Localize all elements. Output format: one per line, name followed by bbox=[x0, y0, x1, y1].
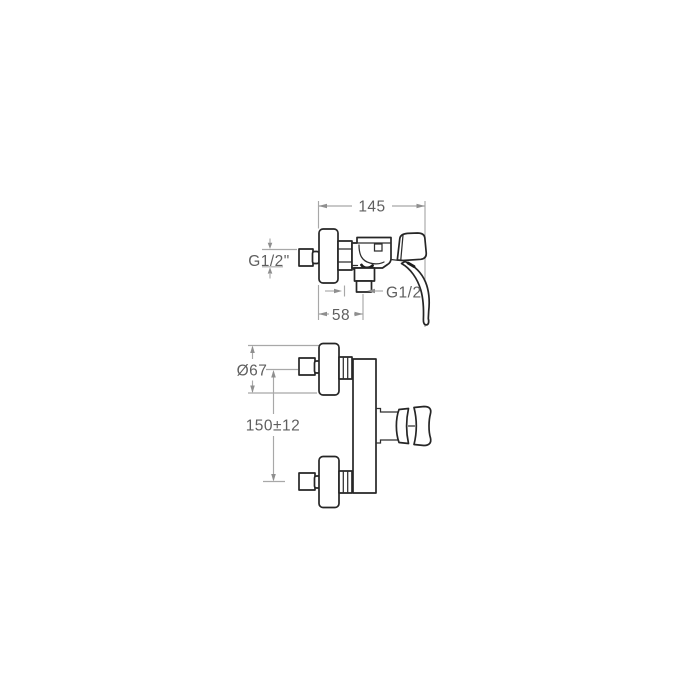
supply-stub bbox=[299, 358, 315, 375]
dim-inlet-thread: G1/2" bbox=[248, 239, 297, 279]
dim-outlet-thread: G1/2 bbox=[325, 285, 422, 302]
hub-top-line bbox=[377, 409, 399, 413]
dim-outlet-thread-label: G1/2 bbox=[386, 285, 422, 302]
hub-bottom-line bbox=[377, 440, 399, 443]
arrowhead-right bbox=[334, 289, 342, 293]
arrowhead-right bbox=[417, 204, 426, 209]
arrowhead-down bbox=[271, 474, 276, 482]
wall-flange bbox=[319, 344, 339, 396]
hex-nut bbox=[339, 357, 352, 379]
stub-connector bbox=[313, 252, 320, 264]
dim-flange-diameter-label: Ø67 bbox=[237, 363, 268, 380]
handle-collar bbox=[396, 409, 408, 444]
supply-stub bbox=[299, 473, 315, 490]
arrowhead-right bbox=[355, 312, 364, 317]
arrowhead-left bbox=[319, 312, 328, 317]
side-view: 145 G1/2" bbox=[248, 199, 429, 328]
cap-body-joint bbox=[391, 260, 397, 261]
dim-total-depth-label: 145 bbox=[358, 199, 385, 216]
wall-flange bbox=[319, 457, 339, 508]
arrowhead-down bbox=[268, 243, 273, 249]
bottom-inlet-assembly bbox=[299, 457, 352, 508]
mixer-body-front bbox=[353, 359, 376, 493]
dim-wall-to-outlet-label: 58 bbox=[332, 307, 350, 324]
shower-mixer-technical-drawing: 145 G1/2" bbox=[0, 0, 700, 700]
outlet-block bbox=[355, 268, 375, 281]
arrowhead-left bbox=[319, 204, 328, 209]
supply-stub bbox=[299, 249, 313, 266]
handle-grip-end bbox=[414, 407, 431, 446]
handle bbox=[391, 233, 429, 325]
arrowhead-up bbox=[250, 346, 255, 354]
dim-inlet-spacing-label: 150±12 bbox=[246, 418, 301, 435]
hex-nut bbox=[339, 471, 352, 493]
dim-inlet-thread-label: G1/2" bbox=[248, 253, 290, 270]
technical-drawing-page: 145 G1/2" bbox=[0, 0, 700, 700]
arrowhead-down bbox=[250, 386, 255, 394]
hex-nut bbox=[338, 241, 352, 270]
top-inlet-assembly bbox=[299, 344, 352, 396]
wall-flange bbox=[319, 229, 338, 283]
outlet-nipple bbox=[357, 281, 372, 292]
arrowhead-up bbox=[271, 370, 276, 378]
front-view: Ø67 150±12 bbox=[237, 344, 431, 508]
handle-front bbox=[377, 407, 431, 446]
